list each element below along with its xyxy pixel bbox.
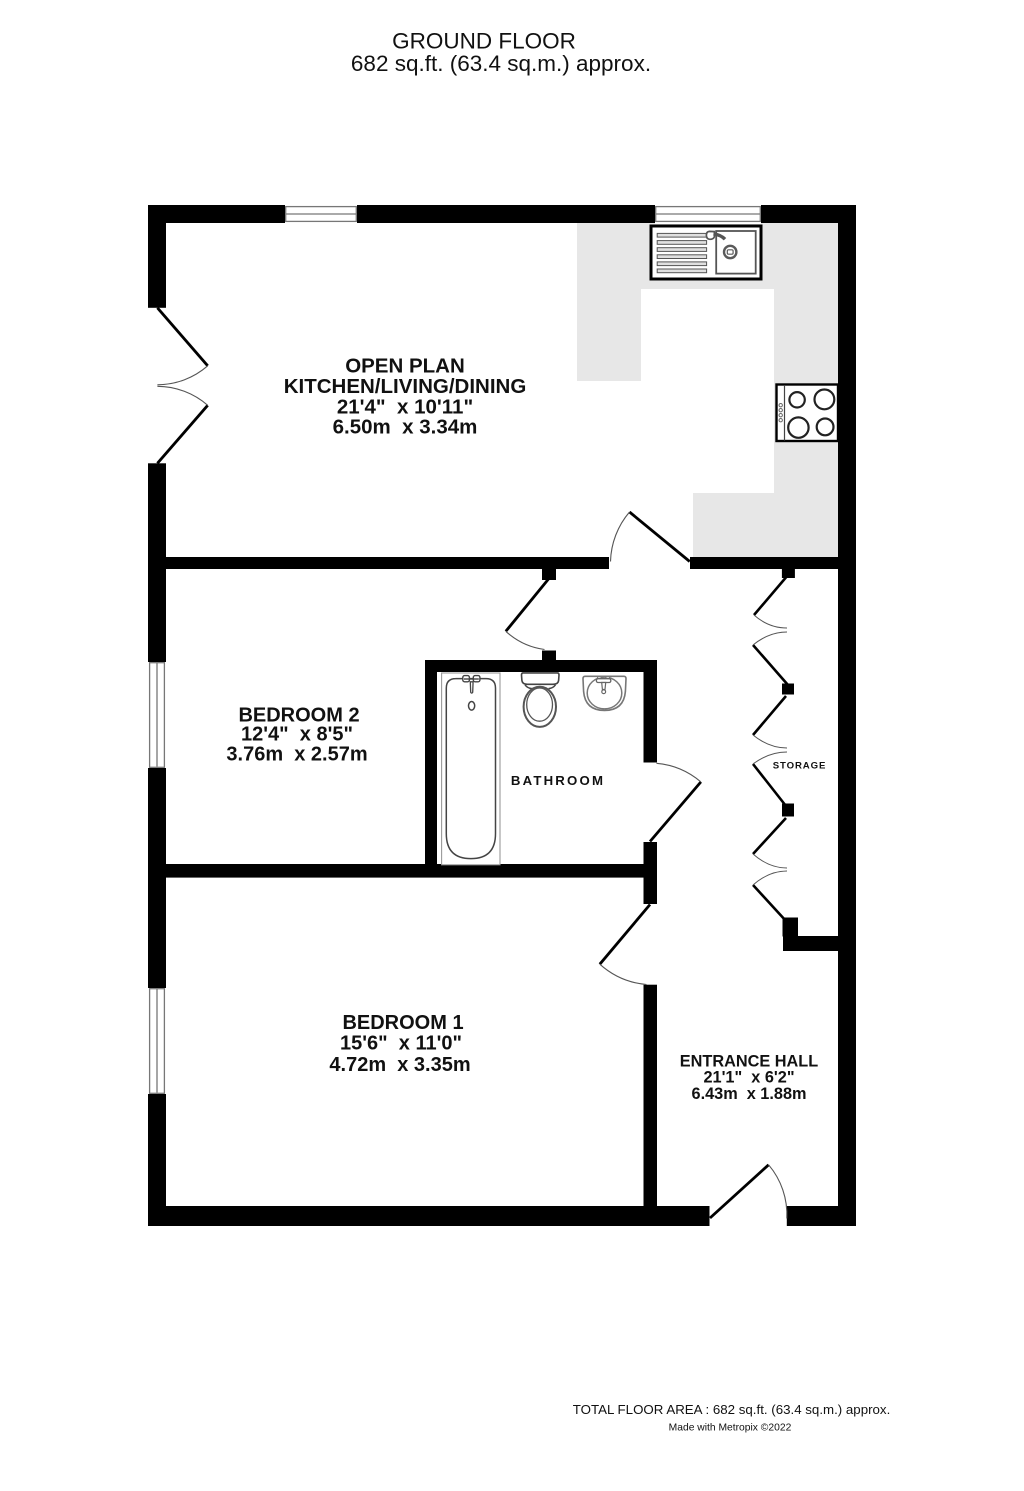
- svg-text:682 sq.ft. (63.4 sq.m.) approx: 682 sq.ft. (63.4 sq.m.) approx.: [351, 51, 651, 76]
- svg-text:4.72m x 3.35m: 4.72m x 3.35m: [329, 1054, 470, 1076]
- svg-text:TOTAL FLOOR AREA : 682 sq.ft.: TOTAL FLOOR AREA : 682 sq.ft. (63.4 sq.m…: [573, 1402, 891, 1417]
- svg-text:15'6" x 11'0": 15'6" x 11'0": [340, 1033, 462, 1055]
- svg-text:GROUND FLOOR: GROUND FLOOR: [392, 28, 576, 53]
- svg-text:3.76m x 2.57m: 3.76m x 2.57m: [226, 744, 367, 766]
- svg-text:6.43m x 1.88m: 6.43m x 1.88m: [692, 1085, 807, 1103]
- svg-text:BEDROOM 1: BEDROOM 1: [342, 1012, 463, 1034]
- svg-text:Made with Metropix ©2022: Made with Metropix ©2022: [669, 1423, 792, 1434]
- svg-text:STORAGE: STORAGE: [773, 761, 827, 772]
- svg-text:BATHROOM: BATHROOM: [511, 773, 605, 788]
- svg-text:12'4" x 8'5": 12'4" x 8'5": [241, 723, 353, 745]
- svg-text:21'1" x 6'2": 21'1" x 6'2": [703, 1069, 794, 1087]
- svg-text:6.50m x 3.34m: 6.50m x 3.34m: [333, 415, 478, 438]
